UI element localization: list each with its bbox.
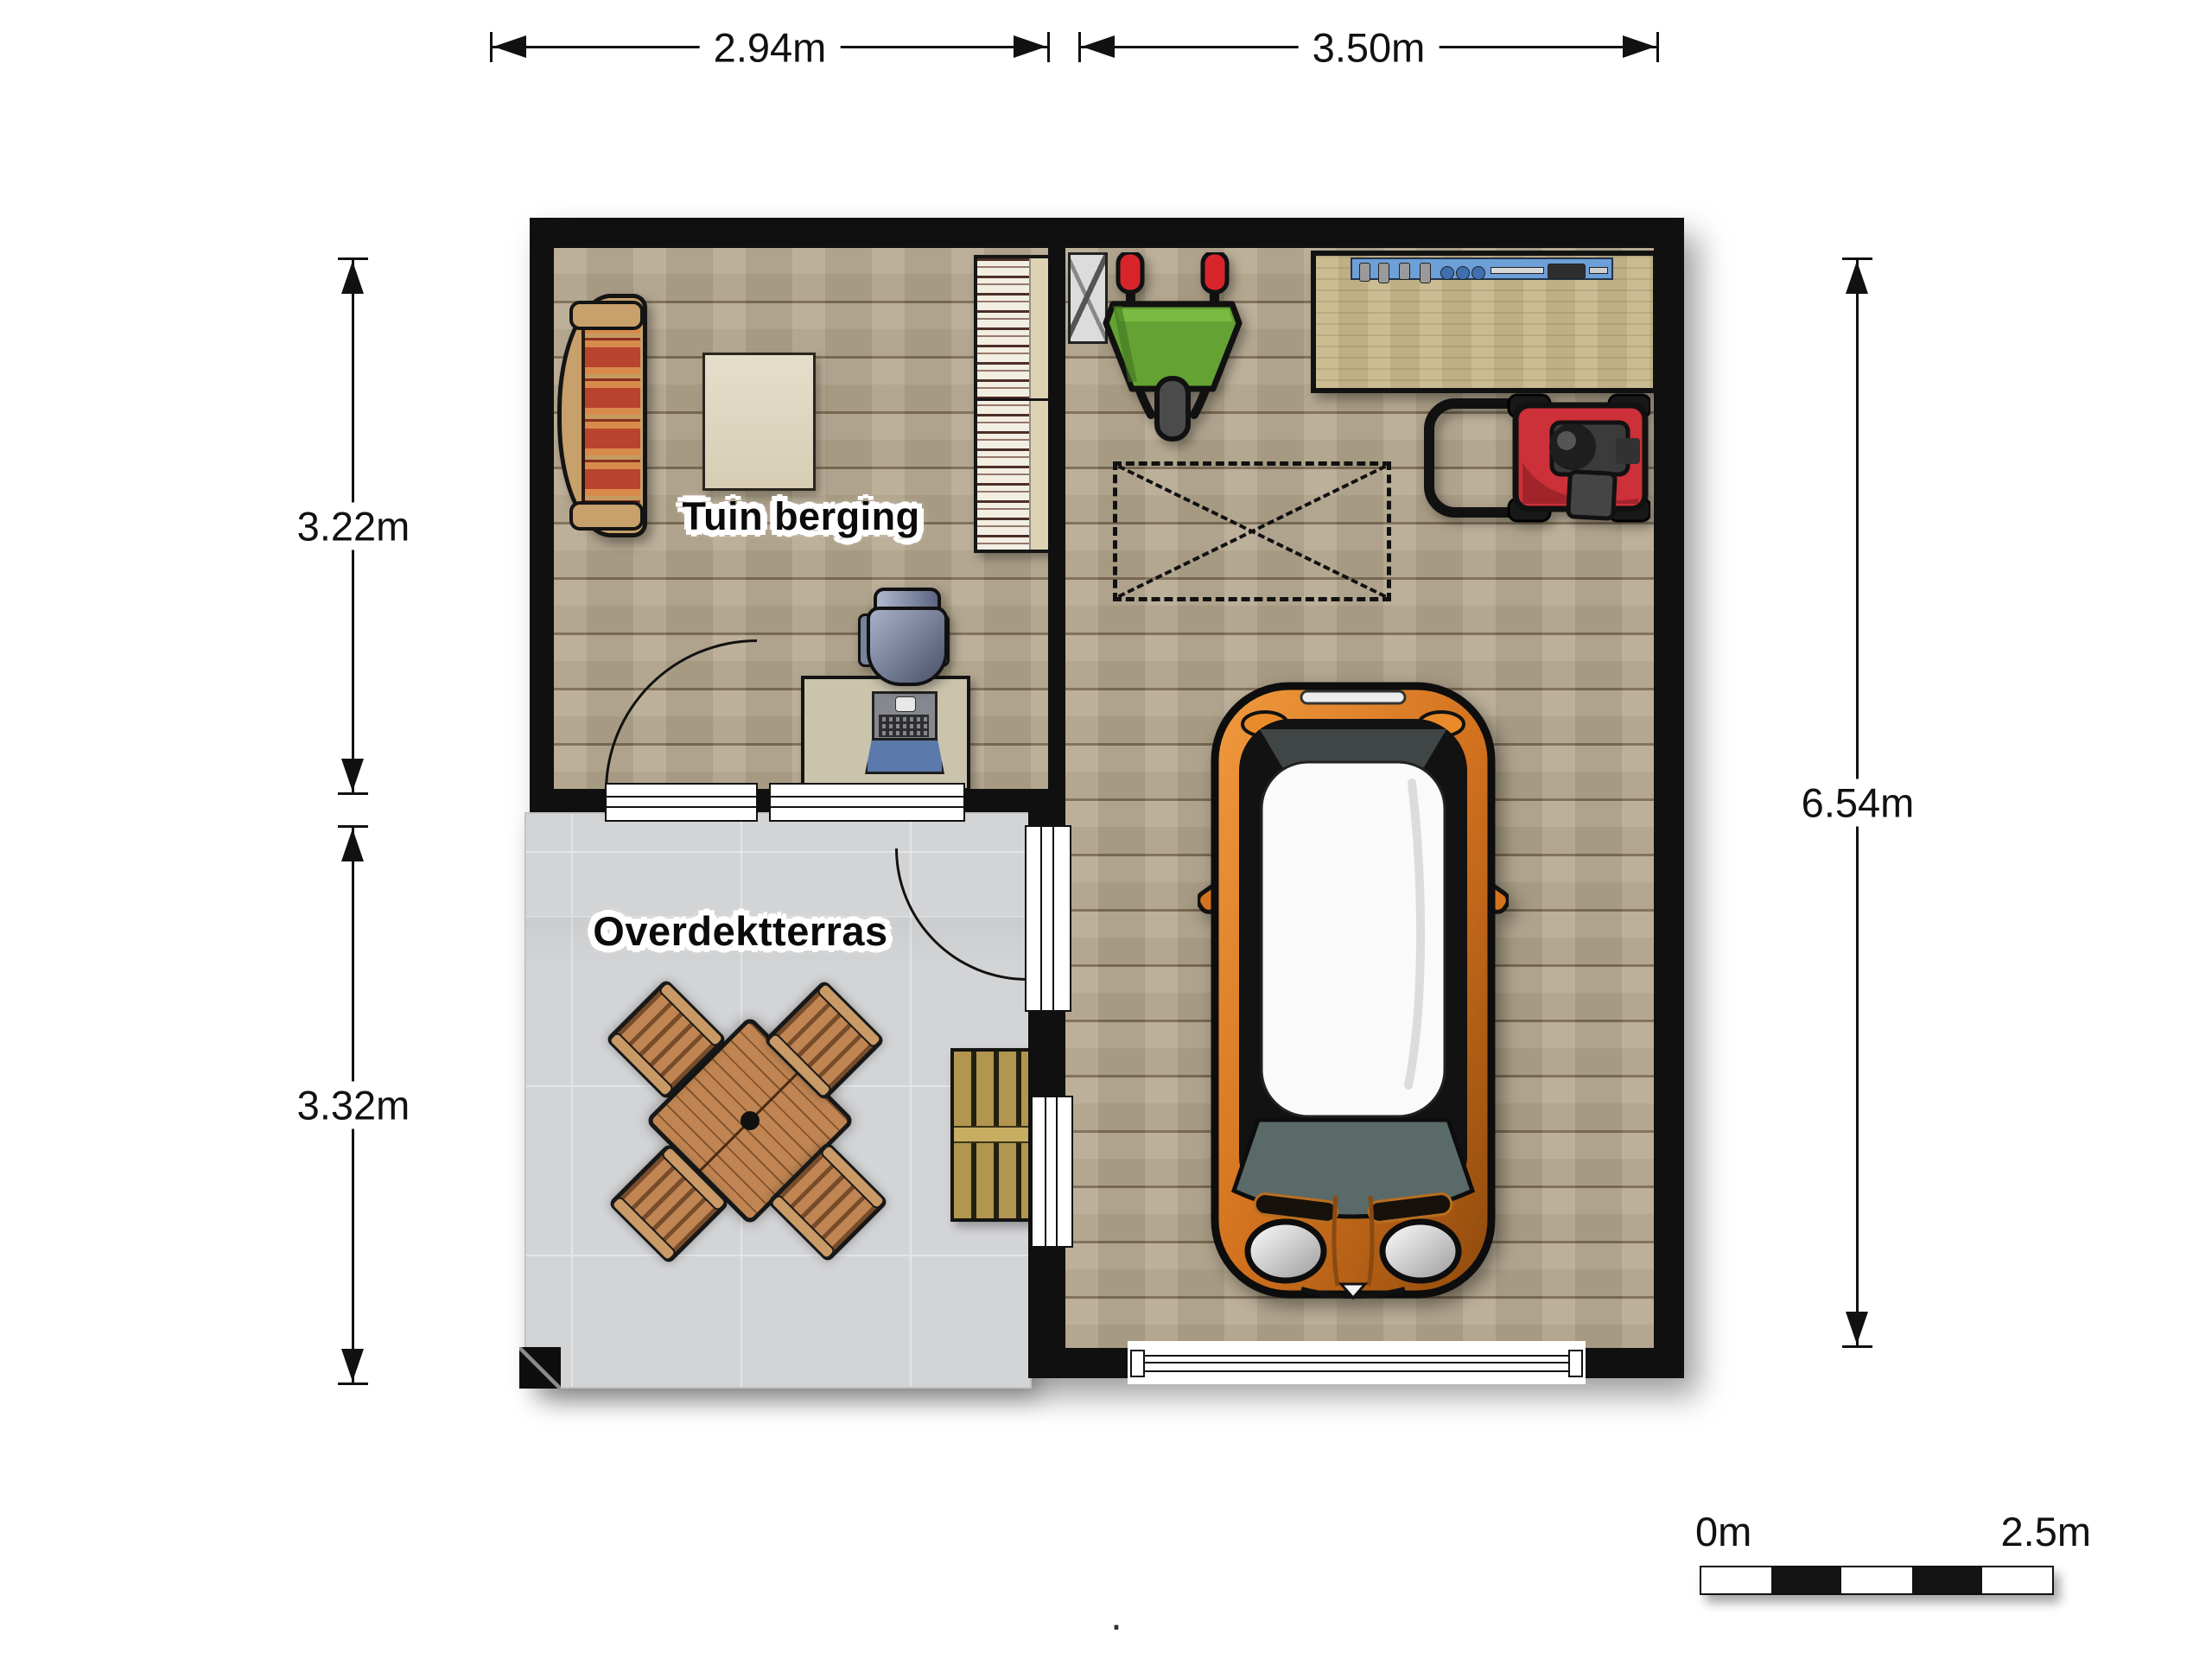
dimension-label: 3.50m — [1299, 24, 1440, 72]
scale-bar — [1700, 1566, 2054, 1595]
sofa-cushions — [582, 315, 640, 517]
terrace-window — [1031, 1096, 1073, 1248]
wall-top — [530, 218, 1684, 248]
storage-door-opening — [605, 783, 758, 822]
dimension-right: 6.54m — [1836, 257, 1879, 1348]
tool-socket-icon — [1359, 263, 1370, 282]
room-label-terrace: Overdektterras — [568, 907, 913, 955]
pallet-rail — [954, 1126, 1037, 1143]
dimension-top-left: 2.94m — [490, 26, 1050, 69]
shelf-divider — [977, 398, 1052, 401]
room-label-storage: Tuin berging — [628, 494, 974, 539]
terrace-corner-post — [519, 1347, 561, 1389]
footnote-dot: . — [1110, 1590, 1122, 1640]
car-headlight-left — [1248, 1222, 1324, 1281]
tool-drill-icon — [1548, 264, 1586, 279]
lawn-mower — [1422, 393, 1650, 523]
scale-end-label: 2.5m — [1961, 1508, 2091, 1555]
scale-segment — [1701, 1567, 1771, 1593]
scale-segment — [1982, 1567, 2052, 1593]
workbench — [1311, 251, 1658, 393]
garage-door-cap-left — [1130, 1350, 1145, 1377]
scale-segment — [1841, 1567, 1911, 1593]
laptop-trackpad — [895, 696, 916, 712]
scale-segment — [1771, 1567, 1841, 1593]
desk — [801, 676, 970, 791]
dimension-left-lower: 3.32m — [332, 825, 375, 1385]
dimension-label: 3.22m — [283, 503, 424, 550]
storage-window — [769, 783, 965, 822]
garage-door-rail — [1141, 1355, 1572, 1372]
garage-door — [1128, 1341, 1586, 1384]
dimension-left-upper: 3.22m — [332, 257, 375, 795]
pallet-bench — [950, 1048, 1040, 1222]
wheelbarrow — [1103, 252, 1243, 444]
tool-rail — [1351, 257, 1613, 280]
dimension-label: 2.94m — [700, 24, 841, 72]
car-headlight-right — [1382, 1222, 1459, 1281]
wall-middle — [1048, 218, 1065, 812]
tool-bar-icon — [1491, 267, 1544, 274]
scale-start-label: 0m — [1695, 1508, 1751, 1555]
wall-left — [530, 218, 554, 812]
dimension-label: 6.54m — [1788, 779, 1929, 827]
tool-socket-icon — [1378, 263, 1389, 283]
car — [1198, 679, 1509, 1305]
tool-socket-icon — [1399, 263, 1410, 280]
chair-seat — [867, 607, 948, 686]
scale-segment — [1912, 1567, 1982, 1593]
rug — [702, 353, 816, 491]
terrace-glazed-door — [1025, 825, 1071, 1012]
tool-bit-icon — [1589, 267, 1608, 274]
tool-socket-icon — [1420, 263, 1431, 283]
tool-cap-icon — [1440, 266, 1454, 280]
office-chair — [858, 588, 950, 679]
laptop-keyboard — [872, 691, 938, 743]
storage-shelving — [974, 255, 1055, 553]
laptop-screen — [865, 738, 944, 774]
garage-door-cap-right — [1568, 1350, 1583, 1377]
sofa-armrest-top — [569, 301, 644, 330]
floorplan-canvas: Tuin berging Overdektterras 2.94m 3.50m … — [0, 0, 2212, 1659]
tool-cap-icon — [1471, 266, 1485, 280]
wall-right — [1654, 218, 1684, 1378]
dimension-top-right: 3.50m — [1078, 26, 1659, 69]
tool-cap-icon — [1456, 266, 1470, 280]
marked-storage-area — [1113, 461, 1391, 601]
dimension-label: 3.32m — [283, 1082, 424, 1129]
